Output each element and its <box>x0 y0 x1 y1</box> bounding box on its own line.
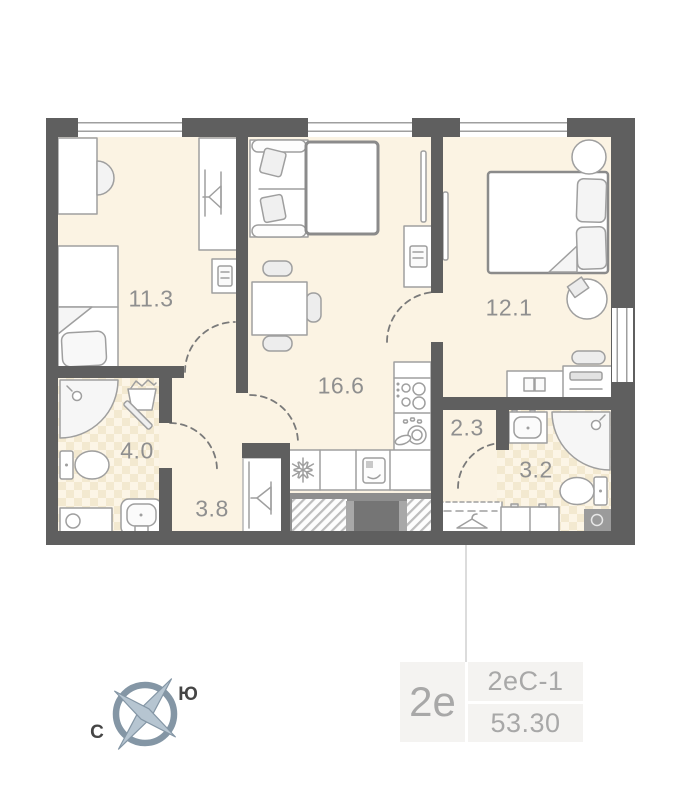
sofa-bed-mattress <box>306 142 378 234</box>
sofa <box>250 140 308 237</box>
room-area-corridor: 2.3 <box>450 415 483 442</box>
vent-shaft-strip <box>287 493 443 532</box>
dishwasher-icon <box>363 458 385 483</box>
shower-corner-2 <box>552 412 610 470</box>
bath-cabinets <box>501 504 559 533</box>
room-area-bathroom-1: 4.0 <box>120 438 153 465</box>
wall <box>443 397 611 410</box>
desk <box>58 138 114 214</box>
apartment-type-label: 2е <box>400 662 465 742</box>
wall <box>431 137 443 293</box>
desk-laptop <box>563 351 612 400</box>
apartment-info-card: 2е 2еС-1 53.30 <box>400 662 583 742</box>
wall <box>242 443 290 458</box>
double-bed <box>488 172 608 273</box>
wall <box>159 378 172 423</box>
layout-code-label: 2еС-1 <box>468 662 583 701</box>
tv-living <box>421 151 426 222</box>
wall <box>236 137 248 393</box>
room-area-hallway: 3.8 <box>195 496 228 523</box>
sink-2 <box>509 410 547 443</box>
wall <box>431 342 443 532</box>
door-bedroom1 <box>185 322 235 372</box>
nightstand-books <box>507 371 564 398</box>
floor-plan-page: 11.3 16.6 12.1 4.0 3.8 2.3 3.2 2е 2еС-1 … <box>0 0 683 800</box>
total-area-label: 53.30 <box>468 704 583 742</box>
wall <box>46 118 58 545</box>
dining-table <box>252 261 321 351</box>
wall <box>46 531 635 545</box>
door-bedroom2 <box>387 292 437 342</box>
floor-drain <box>584 509 611 532</box>
door-bathroom1 <box>170 423 217 470</box>
wardrobe <box>199 138 237 250</box>
wall <box>58 366 184 378</box>
wall <box>496 410 509 450</box>
toilet-1 <box>60 451 109 479</box>
window <box>78 118 182 137</box>
tv-stand <box>212 259 238 293</box>
compass-north-label: С <box>90 722 104 744</box>
toilet-2 <box>560 477 607 505</box>
shower-corner <box>60 380 118 438</box>
room-area-bathroom-2: 3.2 <box>519 457 552 484</box>
window <box>612 308 633 382</box>
window <box>460 118 567 137</box>
compass-south-label: Ю <box>178 684 198 706</box>
sink-1 <box>121 499 162 535</box>
armchair <box>567 277 607 319</box>
room-area-bedroom-2: 12.1 <box>486 295 533 322</box>
single-bed <box>58 246 118 369</box>
wall <box>159 468 172 532</box>
kitchen-counter-row <box>287 450 431 490</box>
wall <box>281 458 290 532</box>
window <box>308 118 412 137</box>
leader-line <box>465 545 467 662</box>
tv-bedroom <box>443 192 448 260</box>
door-hall-living <box>250 395 298 443</box>
entry-wardrobe <box>439 502 502 534</box>
media-cabinet <box>404 226 432 287</box>
room-area-bedroom-1: 11.3 <box>128 286 173 313</box>
room-area-living-kitchen: 16.6 <box>318 373 365 400</box>
pouf <box>572 140 606 174</box>
compass-rose <box>88 656 202 772</box>
hall-closet <box>243 458 284 532</box>
